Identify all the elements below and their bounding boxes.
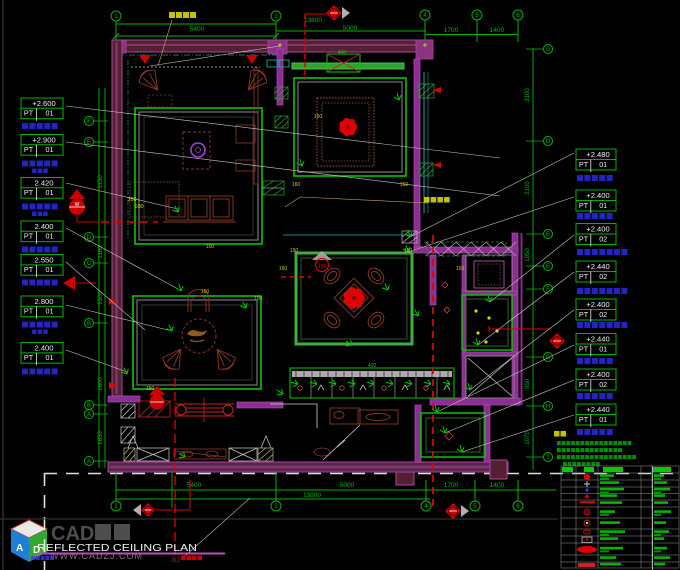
svg-text:PT: PT <box>24 265 34 274</box>
svg-text:01: 01 <box>46 307 54 316</box>
svg-text:1700: 1700 <box>444 27 459 34</box>
svg-text:400: 400 <box>368 363 377 369</box>
svg-text:PT: PT <box>579 380 589 389</box>
svg-text:+2.440: +2.440 <box>586 335 609 344</box>
svg-text:01: 01 <box>46 188 54 197</box>
svg-text:PT: PT <box>579 272 589 281</box>
svg-text:J: J <box>547 455 550 461</box>
svg-text:+2.400: +2.400 <box>586 370 609 379</box>
svg-text:100: 100 <box>206 244 215 250</box>
svg-text:01: 01 <box>46 109 54 118</box>
svg-text:150: 150 <box>201 289 210 295</box>
svg-text:+2.400: +2.400 <box>586 300 609 309</box>
svg-text:150: 150 <box>254 296 263 302</box>
svg-text:5000: 5000 <box>340 482 355 489</box>
svg-text:400: 400 <box>338 50 347 56</box>
svg-text:+2.480: +2.480 <box>586 150 609 159</box>
svg-text:2100: 2100 <box>525 181 531 195</box>
svg-text:F: F <box>546 287 550 293</box>
svg-text:01: 01 <box>599 345 607 354</box>
svg-text:01: 01 <box>46 145 54 154</box>
svg-text:F: F <box>87 119 91 125</box>
svg-text:+2.600: +2.600 <box>32 99 55 108</box>
svg-text:100: 100 <box>134 204 143 210</box>
svg-text:+2.440: +2.440 <box>586 405 609 414</box>
svg-text::: : <box>567 433 568 439</box>
svg-text:B: B <box>87 403 91 409</box>
svg-text:150: 150 <box>279 266 288 272</box>
svg-text:G: G <box>546 47 551 53</box>
svg-text:160: 160 <box>292 182 301 188</box>
svg-text:150: 150 <box>290 248 299 254</box>
svg-text:A: A <box>16 543 23 554</box>
svg-text:01: 01 <box>599 160 607 169</box>
svg-text:13800: 13800 <box>304 17 322 24</box>
svg-text:02: 02 <box>599 272 607 281</box>
svg-text:1950: 1950 <box>525 248 531 262</box>
svg-text:1650: 1650 <box>98 431 104 445</box>
svg-text:01: 01 <box>46 265 54 274</box>
svg-text:3100: 3100 <box>525 88 531 102</box>
svg-text:5400: 5400 <box>190 26 205 33</box>
svg-text:D: D <box>87 235 92 241</box>
svg-text:PT: PT <box>24 188 34 197</box>
svg-text:PT: PT <box>24 232 34 241</box>
svg-text:PT: PT <box>24 353 34 362</box>
svg-text:B2: B2 <box>172 557 180 564</box>
svg-text:02: 02 <box>599 235 607 244</box>
svg-text:150: 150 <box>318 264 327 270</box>
svg-text:+2.440: +2.440 <box>586 262 609 271</box>
svg-text:02: 02 <box>599 380 607 389</box>
svg-text:150: 150 <box>314 114 323 120</box>
svg-text:PT: PT <box>24 145 34 154</box>
svg-text:H: H <box>546 404 550 410</box>
svg-text:PT: PT <box>24 307 34 316</box>
svg-text:D: D <box>546 139 551 145</box>
svg-text:2.420: 2.420 <box>34 179 53 188</box>
svg-text:150: 150 <box>404 248 413 254</box>
svg-text:PT: PT <box>579 345 589 354</box>
svg-text:01: 01 <box>599 201 607 210</box>
svg-text:1700: 1700 <box>444 482 459 489</box>
svg-text:+2.900: +2.900 <box>32 136 55 145</box>
svg-text:3150: 3150 <box>98 175 104 189</box>
svg-text:2.400: 2.400 <box>34 222 53 231</box>
svg-text:E: E <box>546 232 550 238</box>
svg-text:13800: 13800 <box>303 492 321 499</box>
svg-text:REFLECTED CEILING PLAN: REFLECTED CEILING PLAN <box>37 543 197 554</box>
svg-text:2.400: 2.400 <box>34 344 53 353</box>
svg-text:W: W <box>75 202 80 208</box>
svg-text:1400: 1400 <box>490 27 505 34</box>
svg-text:1400: 1400 <box>490 482 505 489</box>
svg-text:2.800: 2.800 <box>34 297 53 306</box>
svg-text:PT: PT <box>579 415 589 424</box>
svg-text:01: 01 <box>599 415 607 424</box>
svg-text:950: 950 <box>525 378 531 389</box>
svg-text:02: 02 <box>599 310 607 319</box>
svg-text:PT: PT <box>579 160 589 169</box>
svg-text:2300: 2300 <box>98 291 104 305</box>
svg-text:150: 150 <box>456 266 465 272</box>
svg-text:01: 01 <box>46 353 54 362</box>
svg-text:CAD: CAD <box>51 523 94 545</box>
svg-text:+2.400: +2.400 <box>586 225 609 234</box>
svg-text:350: 350 <box>127 197 136 203</box>
svg-text:E: E <box>546 264 550 270</box>
svg-text:160: 160 <box>400 182 409 188</box>
svg-text:PT: PT <box>579 235 589 244</box>
svg-text:+2.400: +2.400 <box>586 191 609 200</box>
svg-text:2.550: 2.550 <box>34 256 53 265</box>
svg-text:C: C <box>87 261 92 267</box>
svg-text:5400: 5400 <box>187 482 202 489</box>
svg-text:A: A <box>87 459 91 465</box>
svg-text:PT: PT <box>579 201 589 210</box>
svg-text:5000: 5000 <box>343 25 358 32</box>
svg-text:1600: 1600 <box>98 377 104 391</box>
svg-text:A: A <box>87 412 91 418</box>
svg-text:01: 01 <box>46 232 54 241</box>
svg-text:150: 150 <box>146 386 155 392</box>
svg-text:PT: PT <box>579 310 589 319</box>
svg-text:PT: PT <box>24 109 34 118</box>
svg-text:B: B <box>87 321 91 327</box>
svg-text:1070: 1070 <box>525 431 531 445</box>
